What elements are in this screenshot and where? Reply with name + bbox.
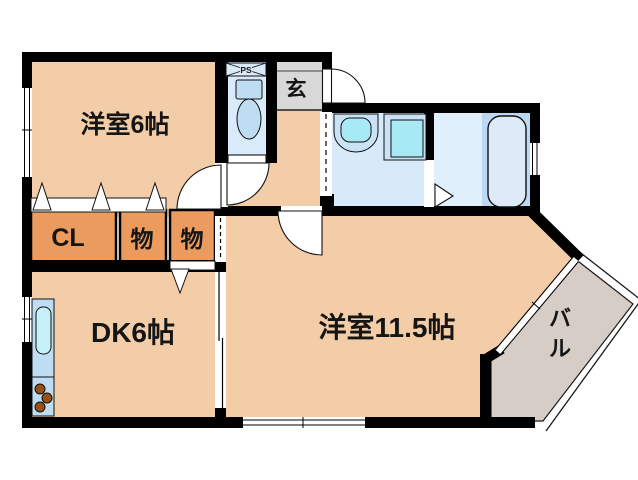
opening-storage-b-dashed	[215, 216, 226, 262]
wall-toilet-right	[266, 52, 277, 163]
wall-dk-divider-seg2	[215, 406, 226, 428]
label-dk: DK6帖	[91, 317, 175, 348]
toilet-tank	[236, 80, 262, 99]
wall-genkan-right-upper	[322, 52, 332, 71]
door-leaf-toilet	[228, 155, 266, 163]
window-left-room6	[22, 88, 32, 177]
door-arc-entrance	[331, 69, 365, 103]
label-closet: CL	[51, 224, 84, 252]
window-left-dk	[22, 297, 32, 342]
opening-washroom-dashed	[320, 112, 332, 196]
floor-plan-svg: 洋室6帖 玄 CL 物 物 DK6帖 洋室11.5帖 バ ル PS	[0, 0, 638, 480]
label-balcony-2: ル	[549, 336, 571, 361]
window-bathroom-right	[530, 143, 540, 175]
label-pipe-space: PS	[240, 65, 252, 75]
door-leaf-entrance	[323, 69, 332, 103]
label-storage-b: 物	[181, 226, 204, 252]
label-storage-a: 物	[131, 226, 154, 252]
label-balcony-1: バ	[549, 306, 571, 331]
doorway-bathroom	[424, 160, 434, 207]
wall-top	[22, 52, 332, 62]
stove-burner-3	[35, 402, 45, 412]
wall-hall-bottom	[215, 206, 281, 216]
label-western6: 洋室6帖	[81, 110, 170, 139]
toilet-bowl	[237, 99, 261, 139]
kitchen-unit	[32, 299, 54, 416]
wall-washroom-left-corner	[320, 194, 334, 208]
stove-burner-1	[35, 384, 45, 394]
label-western115: 洋室11.5帖	[319, 311, 456, 343]
window-bottom-room115	[243, 417, 365, 428]
stove-burner-2	[42, 393, 52, 403]
washbasin-inner	[341, 118, 371, 142]
bathtub	[488, 116, 526, 207]
washing-machine-inner	[391, 120, 423, 157]
floor-plan-page: 洋室6帖 玄 CL 物 物 DK6帖 洋室11.5帖 バ ル PS	[0, 0, 638, 480]
wall-dk-divider-seg1	[215, 262, 226, 272]
kitchen-sink	[36, 307, 51, 354]
label-entrance: 玄	[286, 77, 307, 101]
sliding-door-dk	[215, 272, 226, 408]
wall-balcony-side	[480, 354, 491, 428]
